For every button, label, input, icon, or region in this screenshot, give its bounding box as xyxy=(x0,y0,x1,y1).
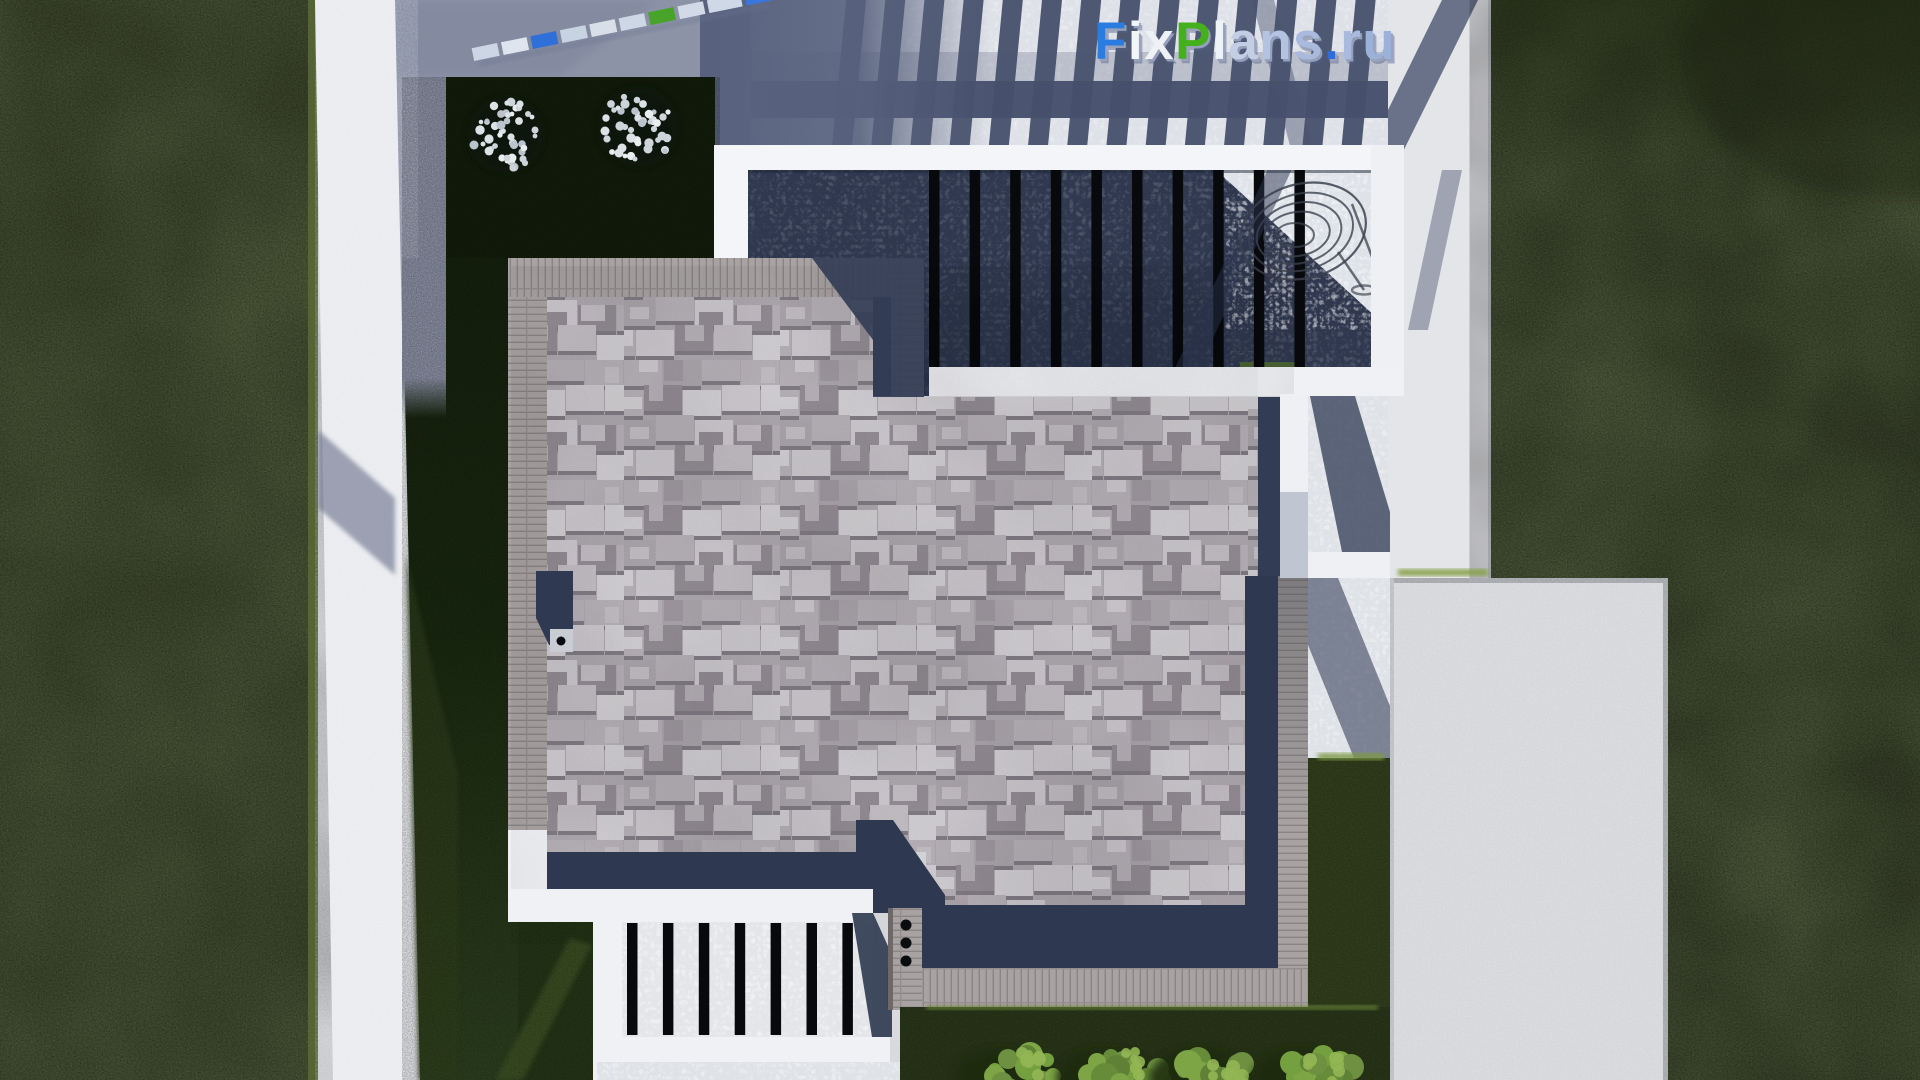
svg-text:FixPlans.ru: FixPlans.ru xyxy=(1094,12,1396,71)
